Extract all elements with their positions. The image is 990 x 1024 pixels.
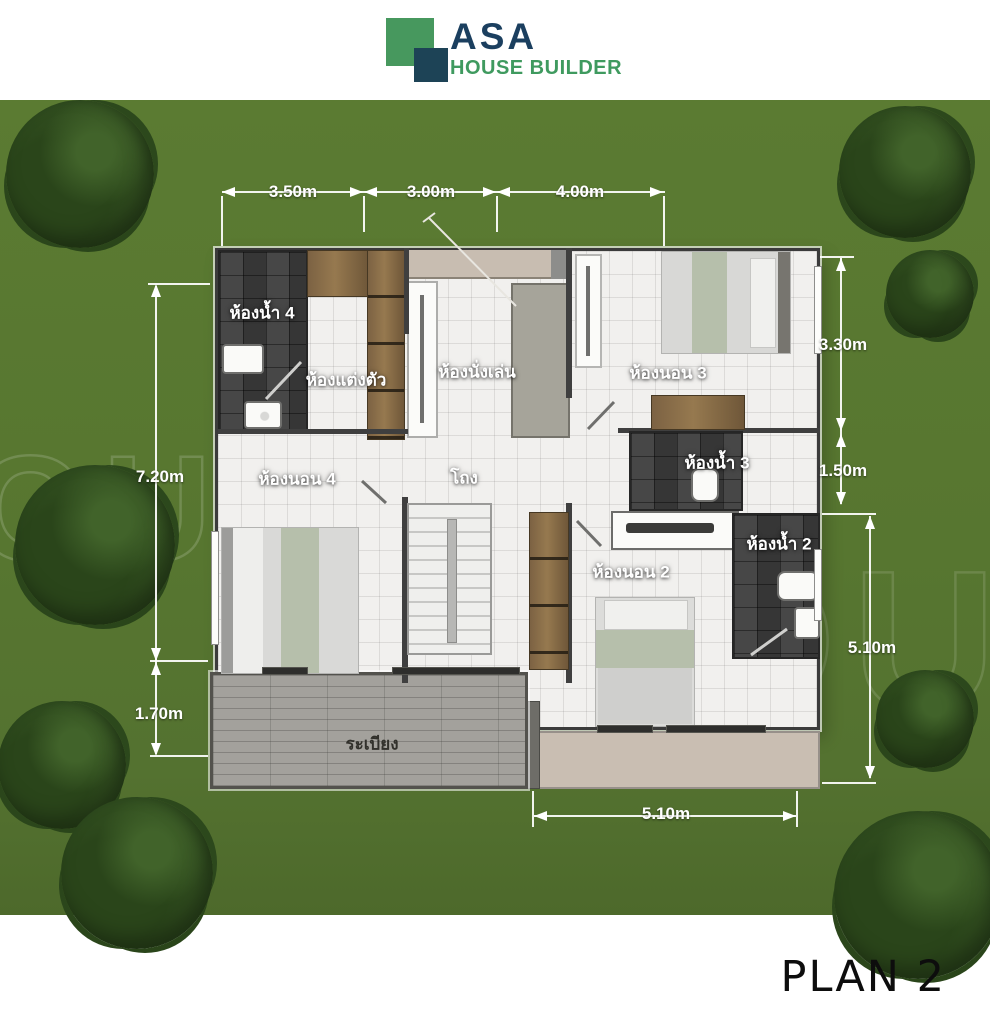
arrow-up-icon: [151, 662, 161, 675]
dim-label-top-2: 3.00m: [407, 182, 455, 202]
dim-label-left-1: 7.20m: [136, 467, 184, 487]
brand-logo: ASA HOUSE BUILDER: [384, 14, 664, 90]
arrow-up-icon: [865, 516, 875, 529]
arrow-down-icon: [836, 492, 846, 505]
dimension-tick: [363, 196, 365, 232]
room-label-bedroom3: ห้องนอน 3: [629, 360, 706, 387]
arrow-right-icon: [650, 187, 663, 197]
arrow-down-icon: [865, 766, 875, 779]
arrow-left-icon: [534, 811, 547, 821]
dimension-tick: [221, 196, 223, 246]
logo-navy-square-icon: [414, 48, 448, 82]
room-label-bathroom4: ห้องน้ำ 4: [229, 300, 294, 327]
room-label-dressing: ห้องแต่งตัว: [306, 367, 387, 394]
arrow-right-icon: [350, 187, 363, 197]
room-label-bathroom3: ห้องน้ำ 3: [684, 450, 749, 477]
dim-label-right-3: 5.10m: [848, 638, 896, 658]
arrow-down-icon: [151, 743, 161, 756]
room-label-living: ห้องนั่งเล่น: [438, 359, 516, 386]
arrow-right-icon: [483, 187, 496, 197]
room-label-balcony: ระเบียง: [345, 731, 398, 758]
arrow-right-icon: [783, 811, 796, 821]
dim-label-bottom-1: 5.10m: [642, 804, 690, 824]
dim-label-right-2: 1.50m: [819, 461, 867, 481]
dimension-tick: [496, 196, 498, 232]
arrow-left-icon: [497, 187, 510, 197]
dim-label-top-3: 4.00m: [556, 182, 604, 202]
dimension-tick: [822, 513, 876, 515]
plan-title: PLAN 2: [781, 952, 946, 1002]
arrow-down-icon: [151, 648, 161, 661]
dimension-tick: [532, 791, 534, 827]
arrow-up-icon: [836, 258, 846, 271]
arrow-up-icon: [836, 434, 846, 447]
brand-name: HOUSE BUILDER: [450, 57, 622, 80]
arrow-down-icon: [836, 418, 846, 431]
dimension-line-left: [155, 286, 157, 754]
room-label-bathroom2: ห้องน้ำ 2: [746, 531, 811, 558]
room-label-hall: โถง: [450, 465, 478, 492]
floor-plan-poster: ASA HOUSE BUILDER HOUSE HOUSE: [0, 0, 990, 1024]
door-swing-lines: [0, 0, 990, 1024]
dim-label-top-1: 3.50m: [269, 182, 317, 202]
dimension-tick: [822, 782, 876, 784]
dimension-tick: [663, 196, 665, 246]
brand-abbr: ASA: [450, 18, 622, 55]
arrow-up-icon: [151, 284, 161, 297]
room-label-bedroom4: ห้องนอน 4: [258, 466, 335, 493]
room-label-bedroom2: ห้องนอน 2: [592, 559, 669, 586]
dim-label-right-1: 3.30m: [819, 335, 867, 355]
arrow-left-icon: [222, 187, 235, 197]
dim-label-left-2: 1.70m: [135, 704, 183, 724]
arrow-left-icon: [364, 187, 377, 197]
dimension-tick: [796, 791, 798, 827]
